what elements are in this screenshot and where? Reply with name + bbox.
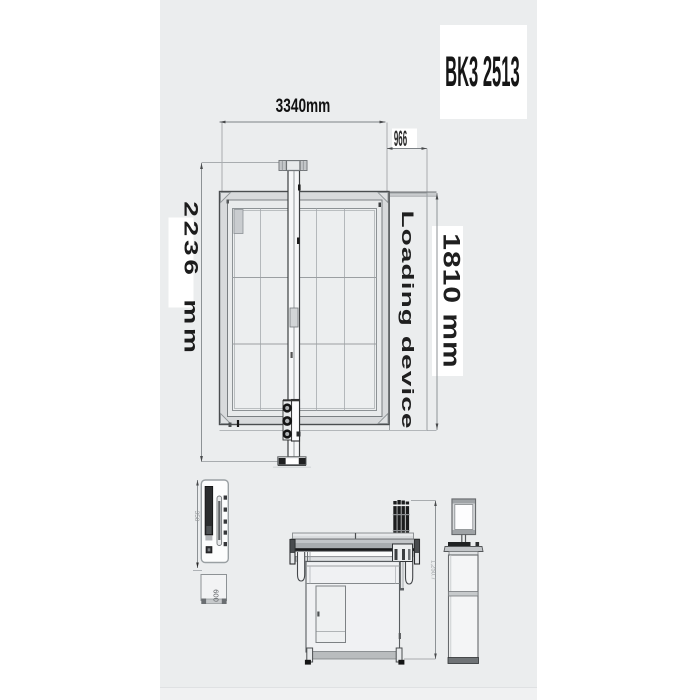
svg-text:1,250.7: 1,250.7 [430,560,436,581]
svg-text:600: 600 [212,589,221,602]
svg-text:3340mm: 3340mm [276,95,331,117]
svg-text:2236 mm: 2236 mm [180,201,201,356]
svg-text:350: 350 [193,511,200,522]
svg-text:BK3 2513: BK3 2513 [445,48,520,96]
svg-text:966: 966 [394,126,407,151]
svg-text:Loading device: Loading device [398,210,417,429]
svg-text:1810 mm: 1810 mm [438,233,465,368]
